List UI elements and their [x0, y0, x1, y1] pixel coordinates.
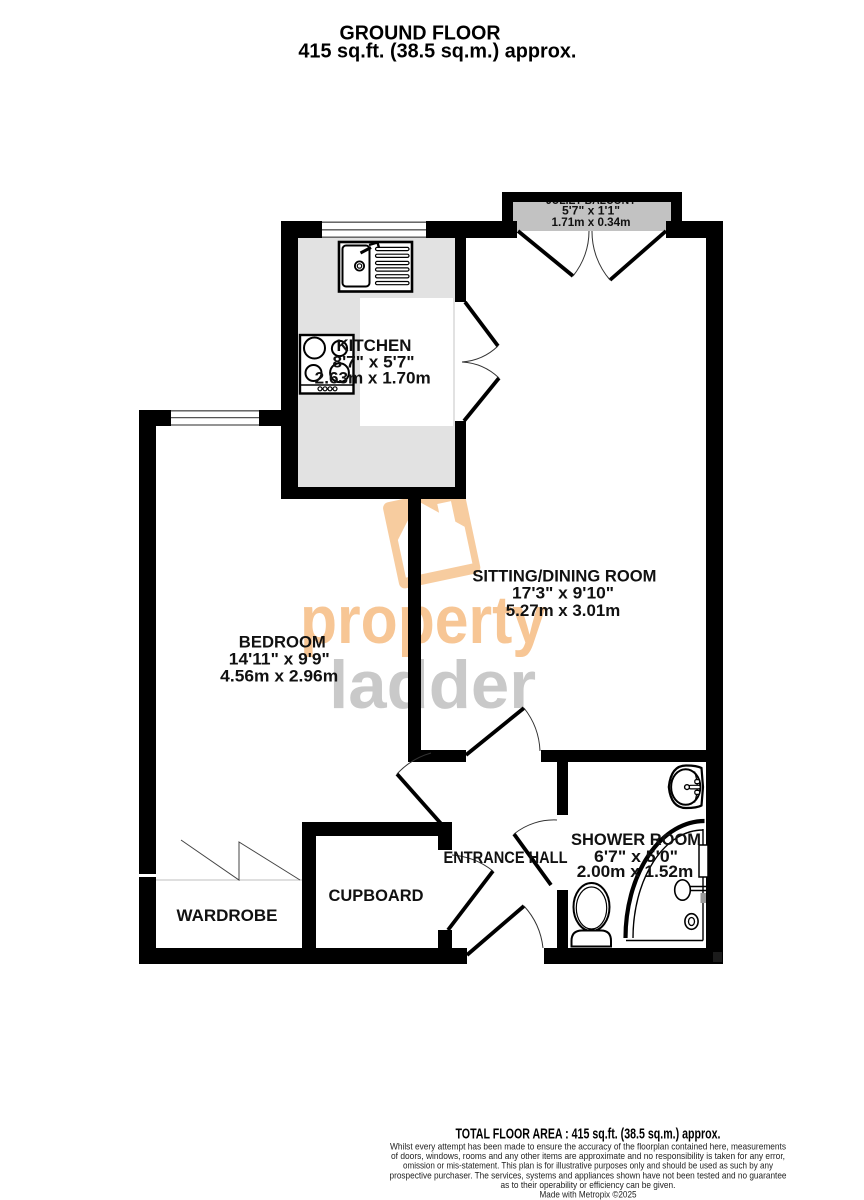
svg-text:prospective purchaser. The ser: prospective purchaser. The services, sys… — [390, 1170, 787, 1180]
svg-text:Made with Metropix ©2025: Made with Metropix ©2025 — [540, 1189, 637, 1199]
svg-text:of doors, windows, rooms and a: of doors, windows, rooms and any other i… — [391, 1151, 785, 1161]
svg-text:TOTAL FLOOR AREA : 415 sq.ft.: TOTAL FLOOR AREA : 415 sq.ft. (38.5 sq.m… — [456, 1127, 721, 1143]
svg-text:14'11" x 9'9": 14'11" x 9'9" — [229, 651, 330, 669]
svg-text:5.27m x 3.01m: 5.27m x 3.01m — [506, 602, 621, 620]
svg-text:SHOWER ROOM: SHOWER ROOM — [571, 831, 701, 849]
svg-text:4.56m x 2.96m: 4.56m x 2.96m — [220, 668, 338, 686]
svg-text:CUPBOARD: CUPBOARD — [329, 887, 424, 905]
svg-text:Whilst every attempt has been: Whilst every attempt has been made to en… — [390, 1141, 786, 1151]
svg-text:WARDROBE: WARDROBE — [177, 907, 278, 925]
svg-text:KITCHEN: KITCHEN — [337, 337, 412, 355]
svg-text:ladder: ladder — [329, 647, 536, 723]
svg-text:2.00m x 1.52m: 2.00m x 1.52m — [577, 863, 694, 881]
svg-text:BEDROOM: BEDROOM — [239, 634, 326, 652]
svg-text:1.71m x 0.34m: 1.71m x 0.34m — [552, 217, 631, 229]
svg-text:ENTRANCE HALL: ENTRANCE HALL — [444, 849, 568, 867]
svg-text:5'7" x 1'1": 5'7" x 1'1" — [562, 206, 620, 218]
svg-text:415 sq.ft. (38.5 sq.m.) approx: 415 sq.ft. (38.5 sq.m.) approx. — [298, 39, 576, 62]
svg-text:as to their operability or eff: as to their operability or efficiency ca… — [501, 1180, 676, 1190]
svg-text:2.63m x 1.70m: 2.63m x 1.70m — [315, 370, 431, 388]
svg-text:17'3" x 9'10": 17'3" x 9'10" — [512, 585, 614, 603]
svg-text:SITTING/DINING ROOM: SITTING/DINING ROOM — [472, 567, 656, 585]
svg-text:omission or mis-statement. Thi: omission or mis-statement. This plan is … — [403, 1161, 773, 1171]
